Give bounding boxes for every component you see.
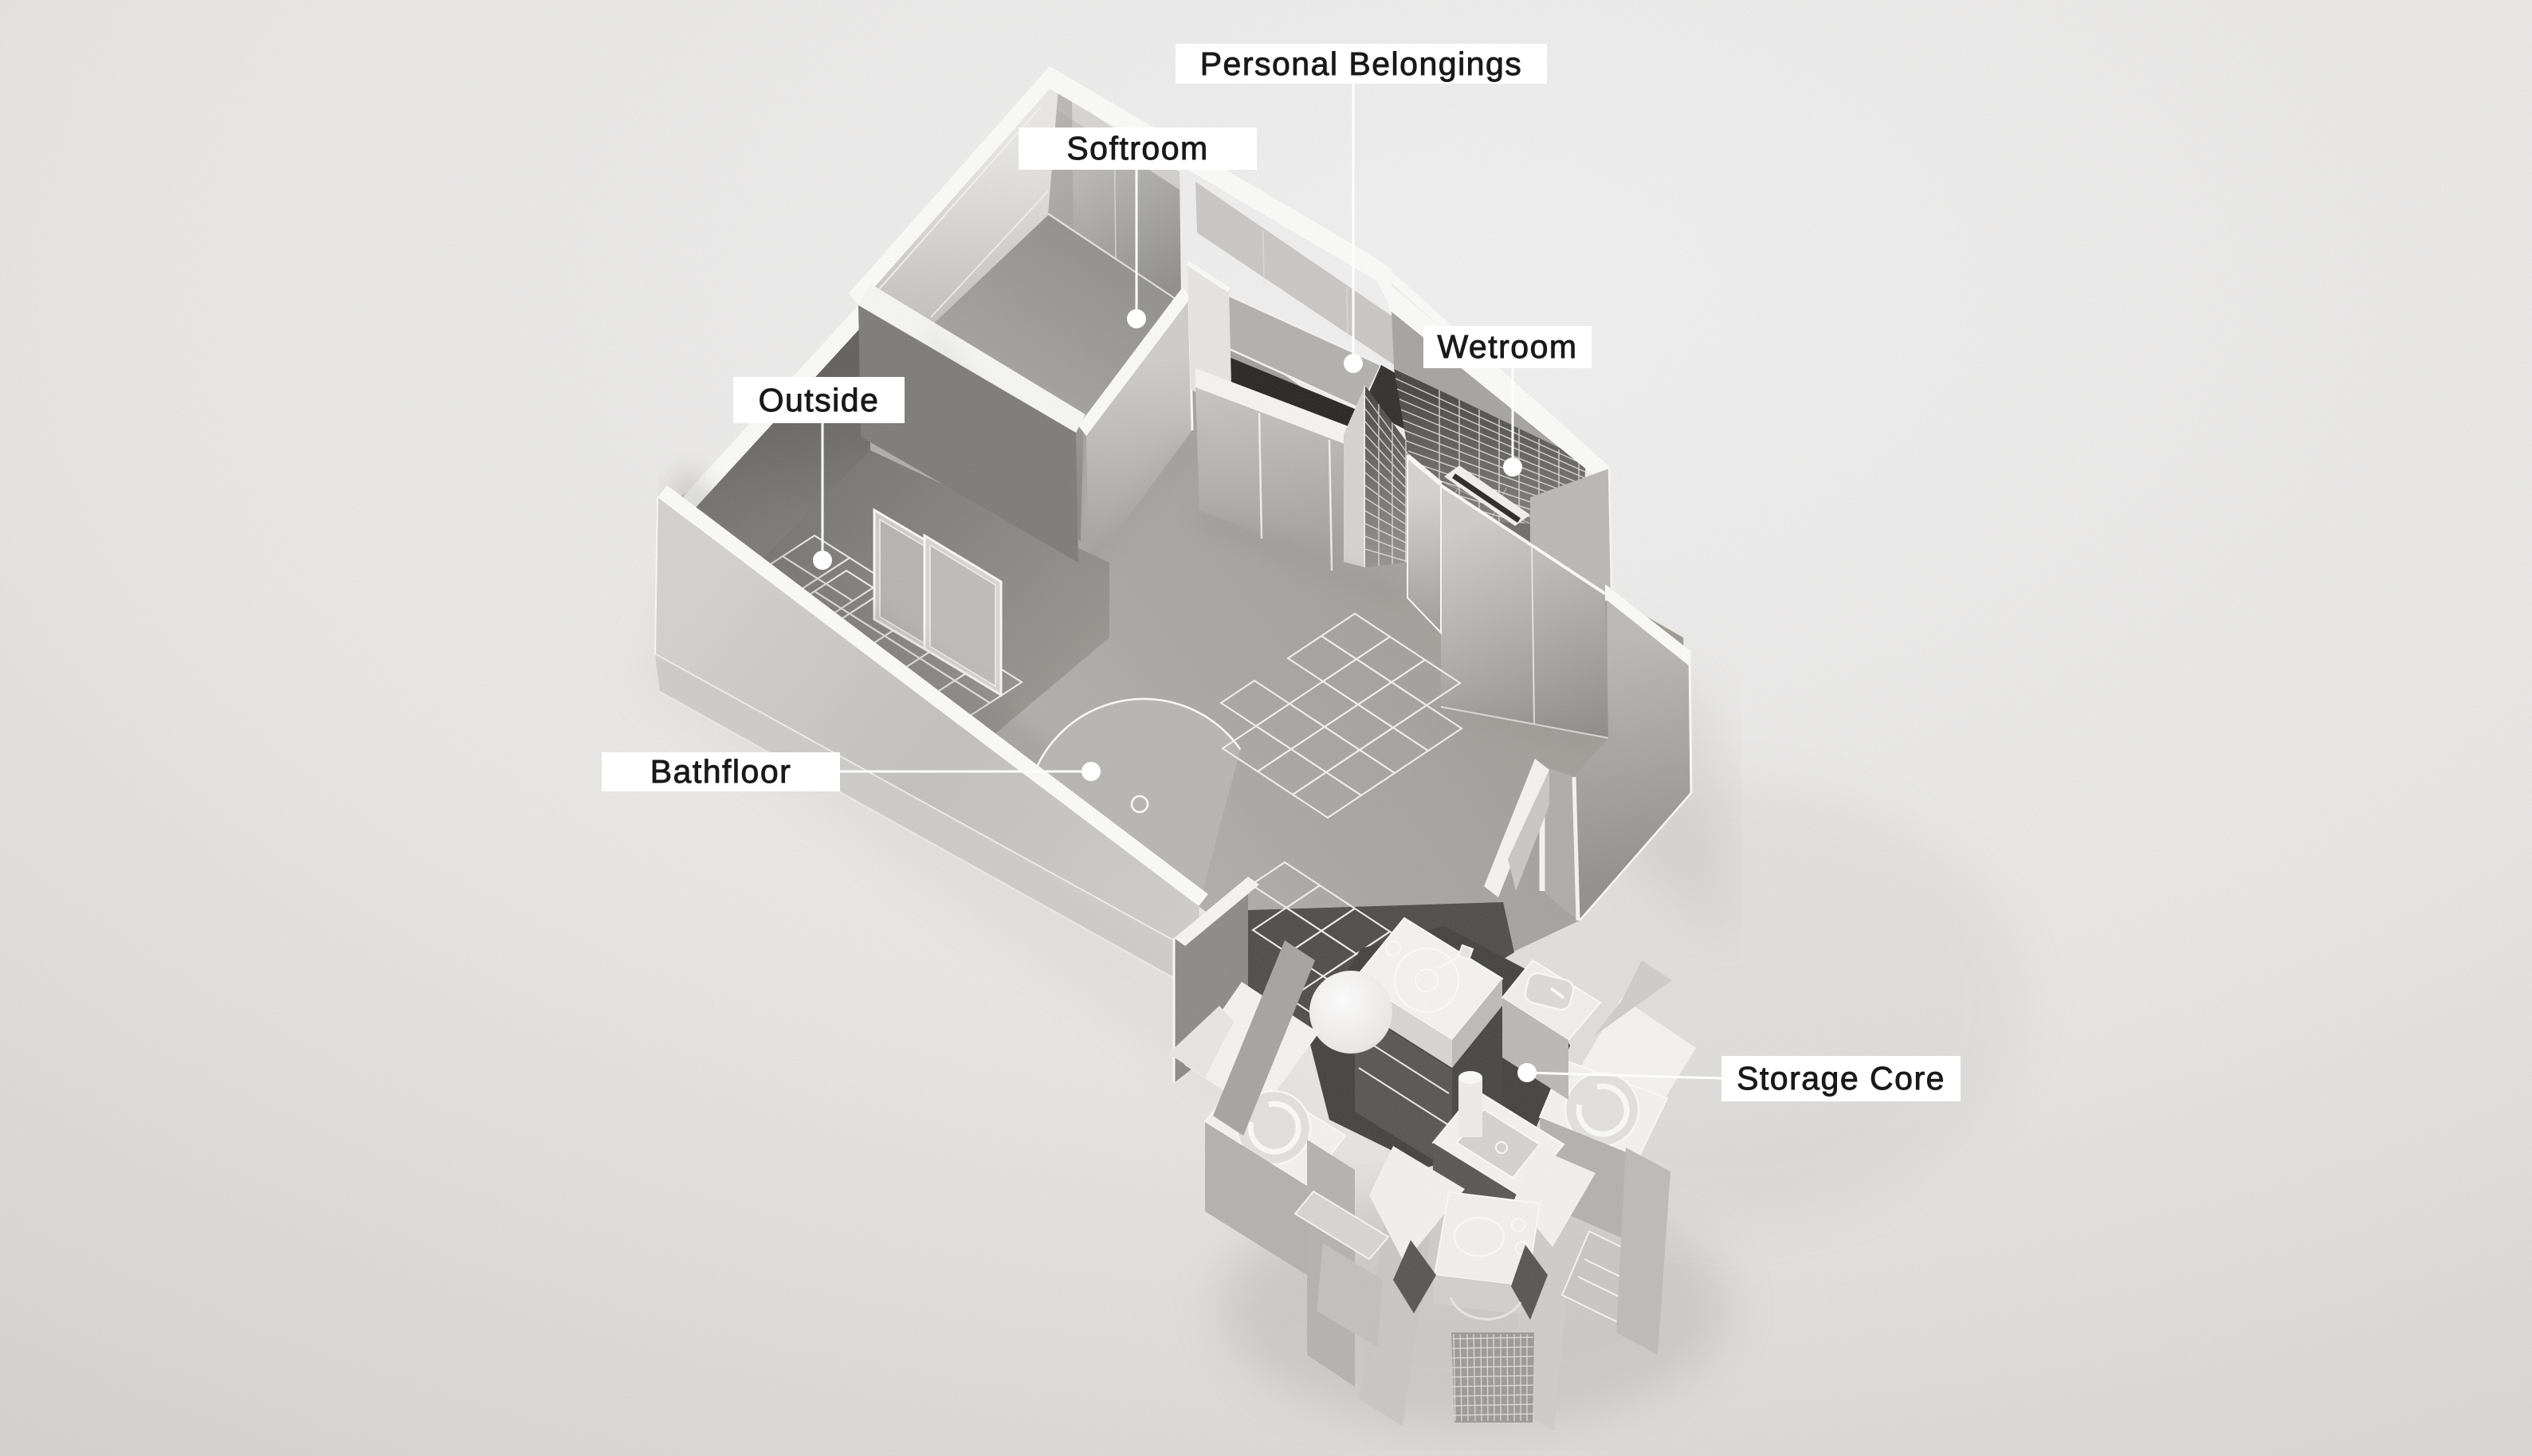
svg-text:Personal Belongings: Personal Belongings (1200, 45, 1523, 82)
svg-text:Bathfloor: Bathfloor (650, 753, 792, 790)
svg-text:Storage Core: Storage Core (1737, 1060, 1945, 1097)
svg-text:Wetroom: Wetroom (1437, 328, 1577, 365)
svg-text:Outside: Outside (759, 382, 880, 418)
svg-text:Softroom: Softroom (1066, 130, 1208, 167)
